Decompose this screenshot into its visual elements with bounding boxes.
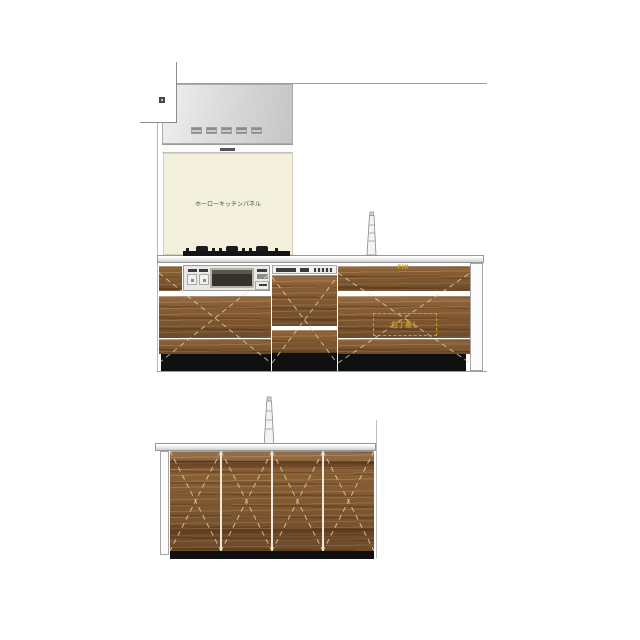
oven-grill-window [210,268,254,288]
oven-control-knob [187,274,197,285]
right-wall-line [376,420,377,558]
countertop [155,443,376,451]
dishwasher-control-strip [272,265,337,274]
oven-control-knob [257,274,268,279]
door-divider [322,451,324,551]
knife-holder-label: 包丁差し [391,320,419,330]
oven-button [257,269,267,272]
wall-soffit [140,62,177,123]
hood-vent-icon [191,127,202,134]
fix-annotation: FIX [388,264,418,271]
cabinet-door-run [170,451,374,551]
cooktop-burners [183,245,290,251]
burner-icon [196,246,208,251]
drawer-front [159,339,271,354]
toe-kick [161,354,271,371]
drawer-front [159,266,182,291]
door-divider [271,451,273,551]
hood-vent-icon [236,127,247,134]
gas-cooktop-icon [183,251,290,256]
hood-vent-icon [251,127,262,134]
dishwasher-button [276,268,296,272]
oven-button [188,269,197,272]
wall-switch-icon [159,97,165,103]
drawer-front [272,330,337,353]
hood-brand-strip [220,148,235,151]
oven-small-drawer [255,281,269,290]
left-wall-line [157,123,158,371]
countertop [157,255,484,263]
end-panel [470,263,483,371]
dishwasher-icon [272,275,337,326]
burner-icon [226,246,238,251]
end-panel [160,451,169,555]
drawer-front [338,339,470,354]
toe-kick [272,353,337,371]
floor-line [157,371,487,372]
toe-kick [338,354,466,371]
kitchen-elevation-drawing: ホーローキッチンパネル [0,0,640,640]
range-hood-icon [162,84,293,144]
burner-icon [256,246,268,251]
kitchen-panel-label: ホーローキッチンパネル [164,199,292,208]
door-divider [220,451,222,551]
built-in-oven-icon [183,265,270,291]
knife-holder-annotation: 包丁差し [373,313,437,336]
hood-vent-icon [206,127,217,134]
hood-vent-icon [221,127,232,134]
drawer-front [159,296,271,338]
oven-control-knob [199,274,209,285]
faucet-icon [261,396,277,445]
dishwasher-vent [314,268,332,272]
dishwasher-button [300,268,309,272]
hood-front-band [162,144,293,153]
toe-kick [170,551,374,559]
kitchen-back-panel: ホーローキッチンパネル [163,153,293,255]
oven-button [199,269,208,272]
faucet-icon [364,211,379,256]
